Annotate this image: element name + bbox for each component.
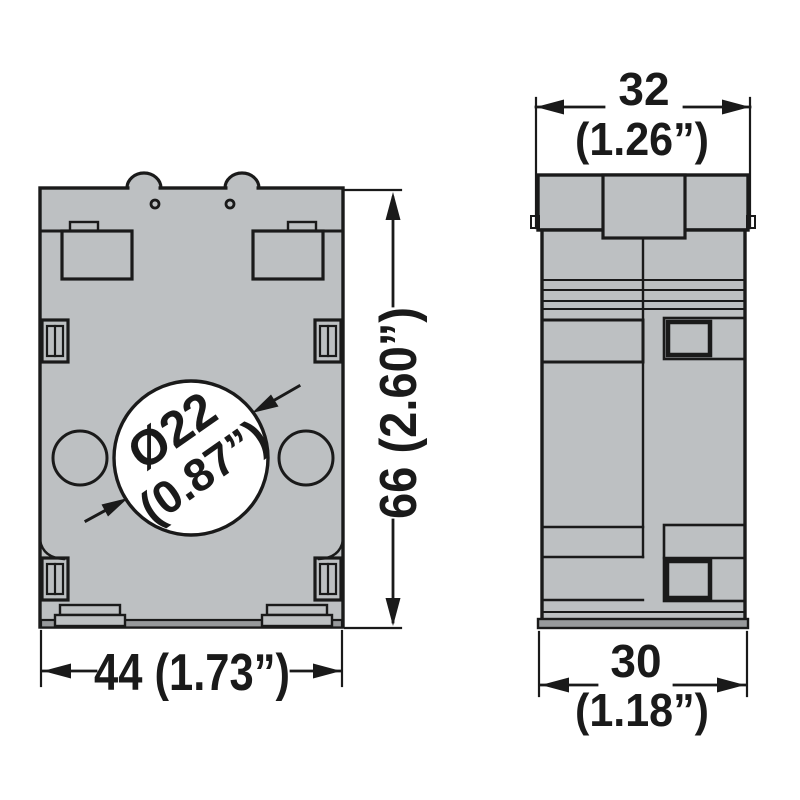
dimension-arrowhead-right [313, 664, 341, 679]
drawing-canvas: Ø22 (0.87”) 44 (1.73”) 66 (2.60”) [0, 0, 800, 800]
dimension-drawing: Ø22 (0.87”) 44 (1.73”) 66 (2.60”) [0, 0, 800, 800]
top-tab-right-join [228, 186, 257, 192]
side-bottom-width-label-in: (1.18”) [575, 684, 709, 736]
fixing-hole-left [53, 431, 107, 485]
side-clip-bottom-left [42, 558, 68, 600]
side-bottom-width-label-mm: 30 [610, 635, 661, 687]
dimension-arrowhead-right [722, 100, 750, 115]
bottom-tab-right [262, 615, 332, 626]
dimension-arrowhead-bottom [386, 598, 401, 626]
fixing-hole-right [279, 431, 333, 485]
side-bottom-width-dimension: 30 (1.18”) [539, 632, 747, 736]
pin-hole-left [151, 200, 159, 208]
side-clip-top-left [42, 320, 68, 362]
dimension-arrowhead-top [386, 192, 401, 220]
front-width-dimension: 44 (1.73”) [41, 631, 342, 702]
side-top-width-label-mm: 32 [618, 63, 669, 115]
top-tab-left-join [130, 186, 159, 192]
terminal-cavity-right [253, 231, 323, 279]
front-height-label: 66 (2.60”) [370, 307, 428, 519]
dimension-arrowhead-left [541, 678, 569, 693]
side-top-center-block [603, 175, 685, 238]
front-view: Ø22 (0.87”) [40, 173, 343, 628]
bottom-tab-right-lip [267, 605, 327, 615]
base-strip-side [538, 619, 748, 628]
dimension-arrowhead-left [43, 664, 71, 679]
side-clip-top-right [315, 320, 341, 362]
front-width-label: 44 (1.73”) [94, 644, 290, 702]
dimension-arrowhead-right [717, 678, 745, 693]
bottom-tab-left [55, 615, 125, 626]
side-clip-bottom-right [315, 558, 341, 600]
side-view [531, 175, 755, 628]
terminal-cavity-left [62, 231, 132, 279]
front-height-dimension: 66 (2.60”) [345, 190, 428, 628]
pin-hole-right [226, 200, 234, 208]
side-top-width-label-in: (1.26”) [575, 113, 709, 165]
dimension-arrowhead-left [536, 100, 564, 115]
bottom-tab-left-lip [60, 605, 120, 615]
